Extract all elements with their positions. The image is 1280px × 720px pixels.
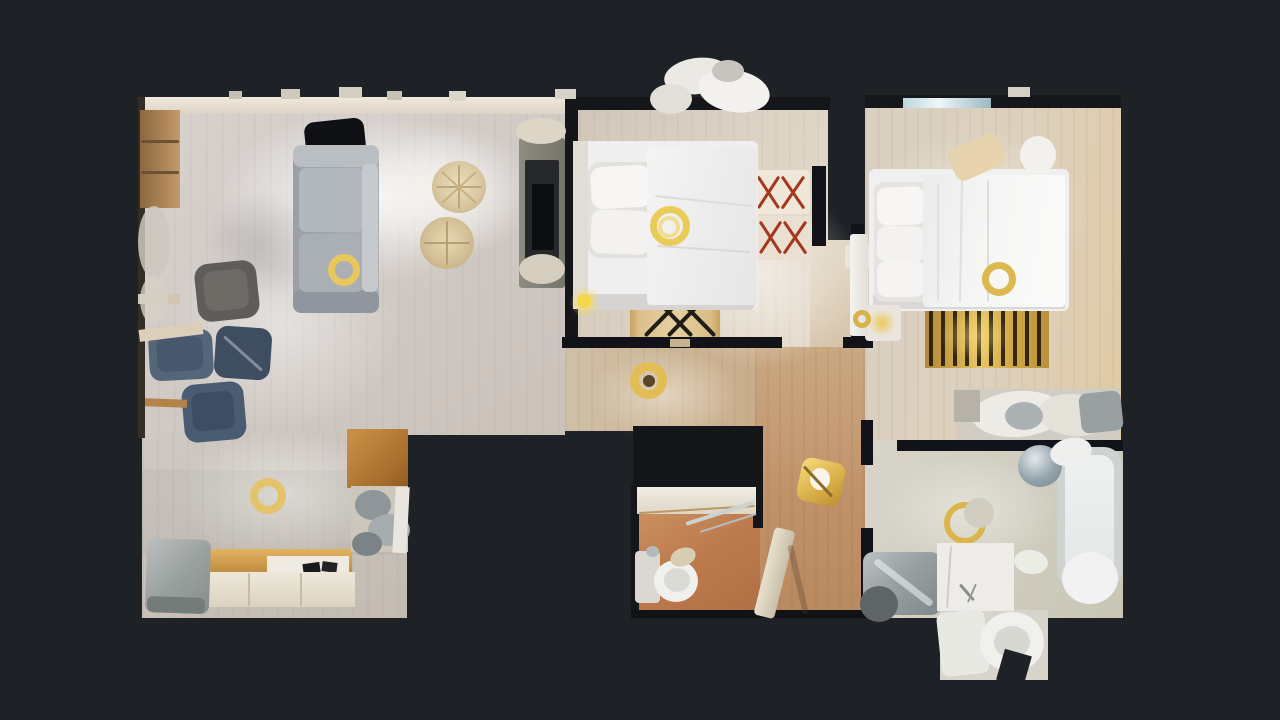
striped-rug-glow [940, 312, 1010, 360]
right-bed-pillow-2 [876, 225, 925, 263]
kitchen-tall-cabinet [347, 429, 408, 488]
bathtub-foot-towel [1062, 552, 1118, 604]
right-bedroom-door-knob [853, 310, 871, 328]
wall-tab-right-bedroom [1008, 87, 1030, 97]
tv-screen [532, 184, 554, 250]
small-bathroom-bottom-wall [631, 610, 765, 618]
closet-row-dark [954, 390, 980, 422]
curtain-blob-3 [650, 84, 692, 114]
shelf-item-3 [352, 532, 382, 556]
tv-console-bottom-shelf [519, 254, 565, 284]
toilet-silver-fitting [646, 546, 659, 557]
kitchen-cabinets [195, 572, 355, 607]
right-bed-white-ball [1020, 136, 1056, 174]
middle-bed-ring-light-inner [658, 216, 680, 238]
vent-tab-1 [281, 89, 300, 99]
middle-bedside-lamp [577, 294, 591, 308]
floorplan-scene[interactable] [0, 0, 1280, 720]
left-bookshelf [140, 110, 180, 208]
right-bed-pillow-1 [876, 186, 925, 226]
vent-tab-2 [339, 87, 362, 98]
small-bathroom-top-wall-block [633, 426, 763, 487]
vent-tab-3 [387, 91, 402, 100]
middle-bed-pillow-2 [590, 209, 651, 255]
sofa-chaise-edge [362, 164, 378, 292]
left-bookshelf-line-1 [141, 140, 179, 143]
crescent-light-mask [964, 498, 994, 528]
right-bedroom-curtain-glint [903, 98, 991, 108]
right-bed-ring-light [982, 262, 1016, 296]
middle-bed-pillow-1 [590, 164, 652, 209]
middle-bedroom-door-threshold [670, 339, 690, 347]
corridor-right-wall-upper [861, 420, 873, 465]
dining-chair-2-cushion [156, 336, 204, 372]
dining-chair-4-cushion [190, 390, 235, 432]
living-top-wall [145, 97, 565, 114]
hall-pendant-1-core [643, 375, 655, 387]
dining-chair-1-cushion [202, 268, 250, 312]
sofa-ring-light [328, 254, 360, 286]
vent-tab-5 [229, 91, 242, 99]
vent-tab-4 [449, 91, 466, 101]
right-bed-pillow-3 [877, 261, 926, 298]
tv-console-top-shelf [516, 118, 566, 144]
right-bedside-glow [868, 309, 896, 337]
middle-bedroom-right-wall [812, 166, 826, 246]
closet-row-gray-1 [1005, 402, 1043, 430]
sofa-cushion-1 [299, 168, 363, 232]
left-wall-clutter-2 [140, 276, 168, 324]
cabinet-seam-2 [300, 573, 302, 606]
middle-bed-headboard [573, 141, 588, 309]
rattan-table-2-spoke-v [446, 221, 448, 265]
toilet-bowl-inner [664, 568, 690, 592]
wood-stick [145, 398, 187, 407]
cabinet-seam-1 [248, 573, 250, 606]
curtain-blob-gray [712, 60, 744, 82]
right-bed-crease-1 [937, 184, 939, 300]
left-bookshelf-line-2 [141, 171, 179, 174]
kitchen-pendant-ring [250, 478, 286, 514]
washing-machine-dark-corner [860, 586, 898, 622]
closet-row-gray-2 [1078, 390, 1124, 434]
wall-tab-middle-bedroom [555, 89, 576, 99]
sofa-arm-bottom [293, 290, 379, 313]
fridge-dark-base [147, 596, 206, 614]
left-wall-clutter-1 [138, 206, 170, 278]
